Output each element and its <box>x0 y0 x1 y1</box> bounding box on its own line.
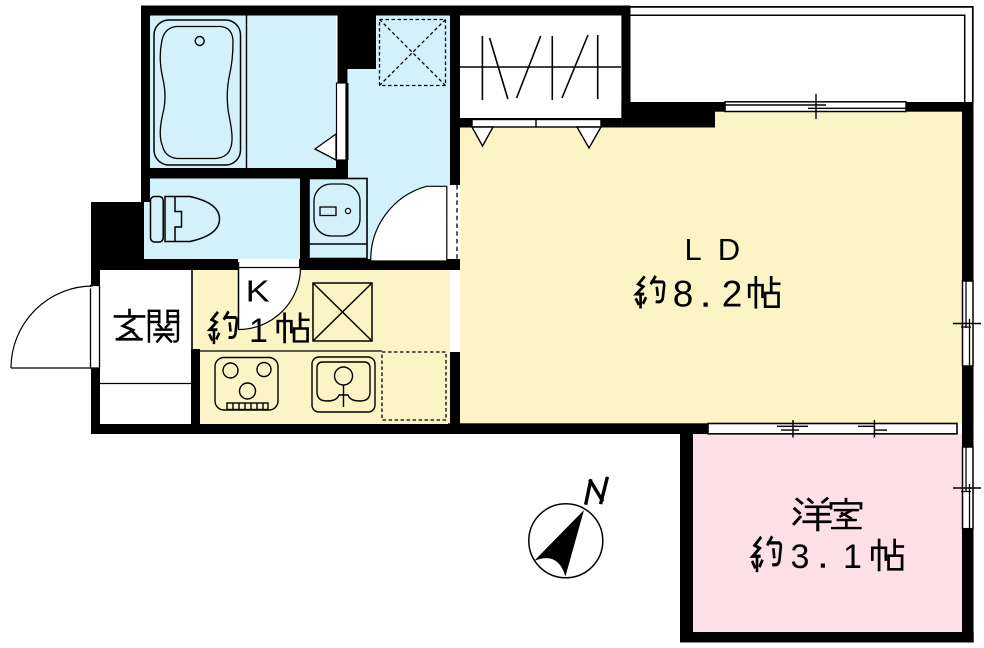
svg-text:8: 8 <box>673 274 694 315</box>
svg-text:D: D <box>718 232 740 267</box>
svg-text:L: L <box>685 232 702 267</box>
svg-text:1: 1 <box>843 538 862 576</box>
svg-text:3: 3 <box>791 538 810 576</box>
svg-text:2: 2 <box>722 274 743 315</box>
svg-text:K: K <box>246 273 270 308</box>
svg-text:1: 1 <box>249 312 268 350</box>
